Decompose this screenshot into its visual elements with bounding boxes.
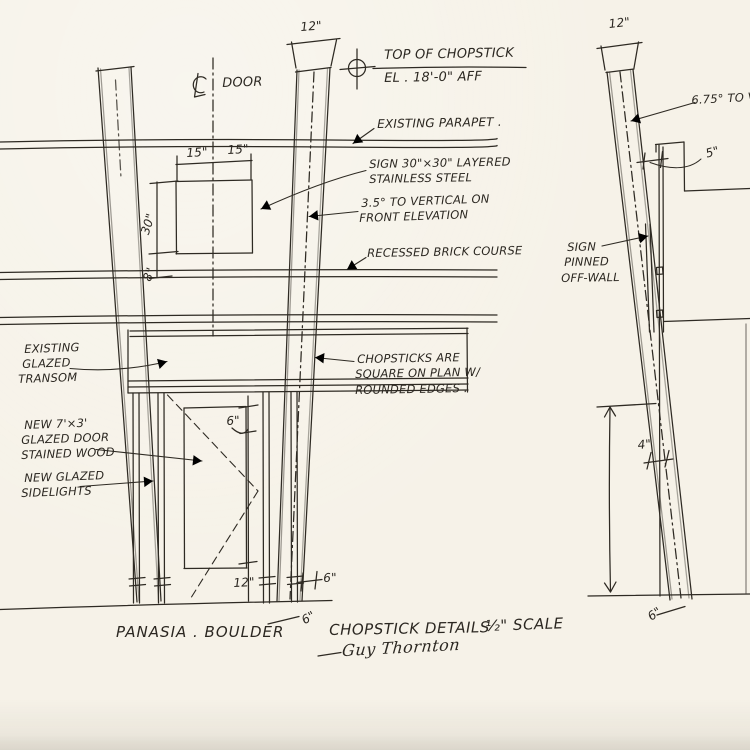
sign-note-line2: STAINLESS STEEL (369, 170, 472, 186)
paper: 12" DOOR TOP OF CHOPSTICK EL . 18'-0" AF… (0, 0, 750, 750)
ground-line-front (0, 601, 332, 610)
side-sign-label-line1: SIGN (567, 239, 596, 254)
side-elevation (588, 38, 750, 621)
side-mid-dim-label: 4" (637, 437, 652, 452)
transom-label-line2: GLAZED (22, 355, 71, 371)
sign-right-half-dim-label: 15" (227, 142, 249, 157)
chopsticks-note-line2: SQUARE ON PLAN W/ (355, 365, 480, 381)
side-angle-leader (629, 103, 695, 126)
door-kick-dim-label: 12" (233, 575, 255, 590)
side-mid-dimension (643, 451, 674, 470)
side-sign-offset-dimension (637, 152, 701, 170)
side-chopstick-top-dim-label: 12" (608, 15, 631, 31)
drawing-title: CHOPSTICK DETAILS (329, 618, 490, 639)
chopstick-top-dimension (287, 34, 340, 68)
new-door-label-line1: NEW 7'×3' (24, 416, 88, 432)
sign-outline (176, 180, 253, 254)
sketch-page: { "paper": { "background": "#f6f2e8", "i… (0, 0, 750, 750)
chopsticks-note-line3: ROUNDED EDGES . (355, 381, 468, 397)
side-sign-label-line2: PINNED (564, 254, 609, 269)
door-centerline-label: DOOR (222, 75, 263, 91)
signature-dash (318, 653, 341, 657)
centerline-symbol (193, 74, 206, 98)
sidelights-label-line2: SIDELIGHTS (21, 484, 92, 500)
side-chopstick-top-dimension (596, 38, 643, 70)
scale-label: ½" SCALE (485, 614, 564, 635)
chopsticks-note-line1: CHOPSTICKS ARE (357, 350, 460, 366)
transom-label-line3: TRANSOM (18, 370, 78, 386)
transom-label-line1: EXISTING (24, 340, 80, 356)
recessed-brick-label: RECESSED BRICK COURSE (367, 243, 523, 260)
project-title: PANASIA . BOULDER (116, 623, 284, 641)
sign-left-half-dim-label: 15" (186, 145, 208, 160)
sidelights-label-line1: NEW GLAZED (24, 468, 105, 485)
front-chopstick-top-dim-label: 12" (300, 19, 322, 34)
side-angle-label: 6.75° TO VE (691, 89, 750, 107)
side-wall-and-parapet (656, 142, 750, 596)
sign-note-line1: SIGN 30"×30" LAYERED (369, 155, 511, 171)
top-of-chopstick-label-line1: TOP OF CHOPSTICK (384, 46, 514, 63)
existing-parapet-label: EXISTING PARAPET . (377, 115, 502, 131)
side-sign-label-line3: OFF-WALL (561, 270, 620, 285)
side-chopstick (606, 69, 692, 600)
sign-dimensions (149, 154, 256, 283)
jamb-dim-label: 6" (323, 571, 337, 585)
side-height-dimension (597, 404, 656, 593)
door-head-dim-label: 6" (226, 413, 240, 428)
side-sign-leader (602, 231, 649, 246)
top-of-chopstick-label-line2: EL . 18'-0" AFF (384, 69, 482, 86)
